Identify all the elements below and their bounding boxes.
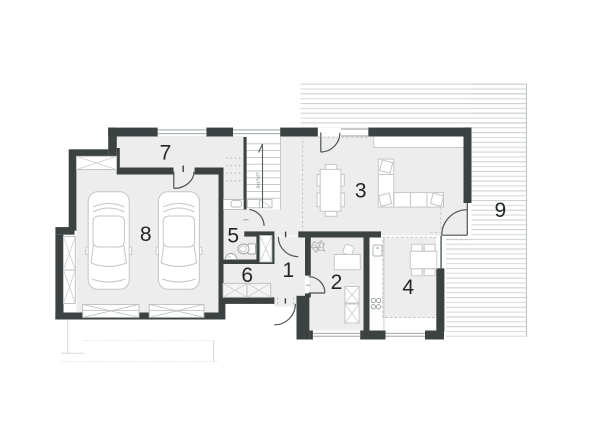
svg-text:9: 9 xyxy=(495,199,507,222)
svg-text:5: 5 xyxy=(227,225,239,248)
svg-text:7: 7 xyxy=(160,141,172,164)
svg-text:3: 3 xyxy=(355,180,367,203)
svg-text:8: 8 xyxy=(140,223,152,246)
svg-text:1: 1 xyxy=(282,259,294,282)
svg-text:4: 4 xyxy=(402,276,414,299)
svg-text:2: 2 xyxy=(331,271,343,294)
svg-text:9x17x27: 9x17x27 xyxy=(256,171,261,188)
svg-text:6: 6 xyxy=(241,264,253,287)
